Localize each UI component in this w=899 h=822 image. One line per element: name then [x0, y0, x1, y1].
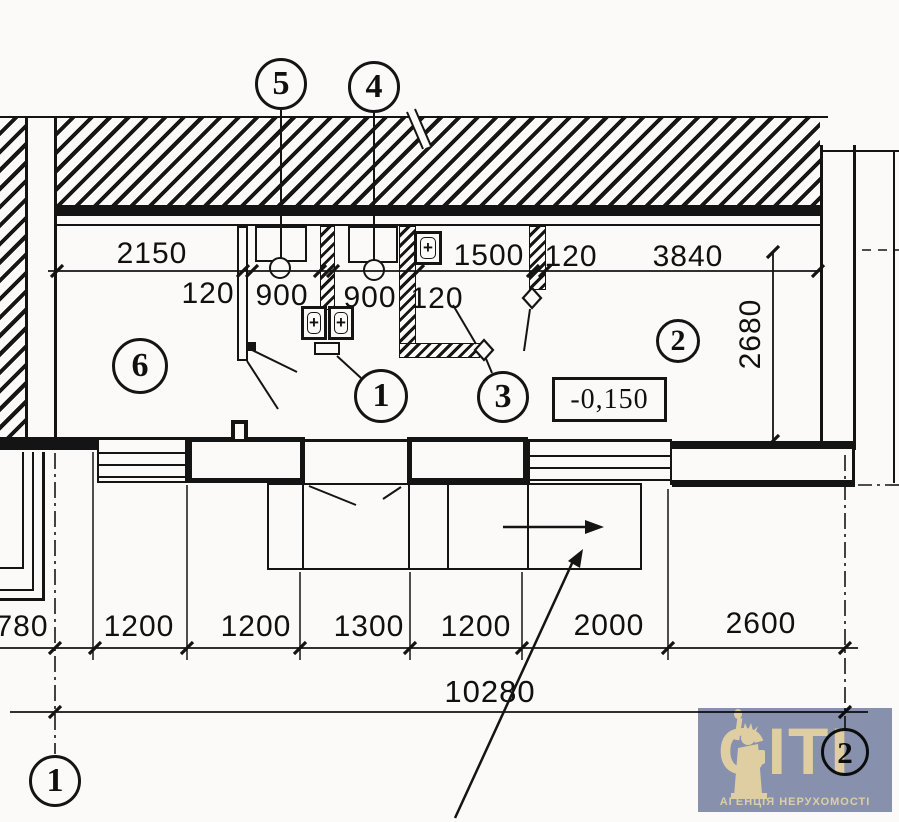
entrance-arrow [455, 549, 583, 818]
agency-watermark: CITI АГЕНЦІЯ НЕРУХОМОСТІ [698, 708, 892, 812]
dimension-lines [0, 252, 868, 712]
dimension-overlay [0, 0, 899, 822]
watermark-caption: АГЕНЦІЯ НЕРУХОМОСТІ [698, 796, 892, 808]
leader-lines [247, 110, 530, 505]
door-opening-lines [309, 486, 401, 505]
diamond-marker-L [475, 340, 493, 360]
wall-break-mark [407, 109, 431, 149]
floor-plan-canvas: + + + [0, 0, 899, 822]
diamond-marker-3 [523, 288, 541, 308]
stair-direction-arrow [503, 520, 604, 534]
statue-of-liberty-icon [728, 708, 772, 800]
diamond-markers [475, 288, 541, 360]
